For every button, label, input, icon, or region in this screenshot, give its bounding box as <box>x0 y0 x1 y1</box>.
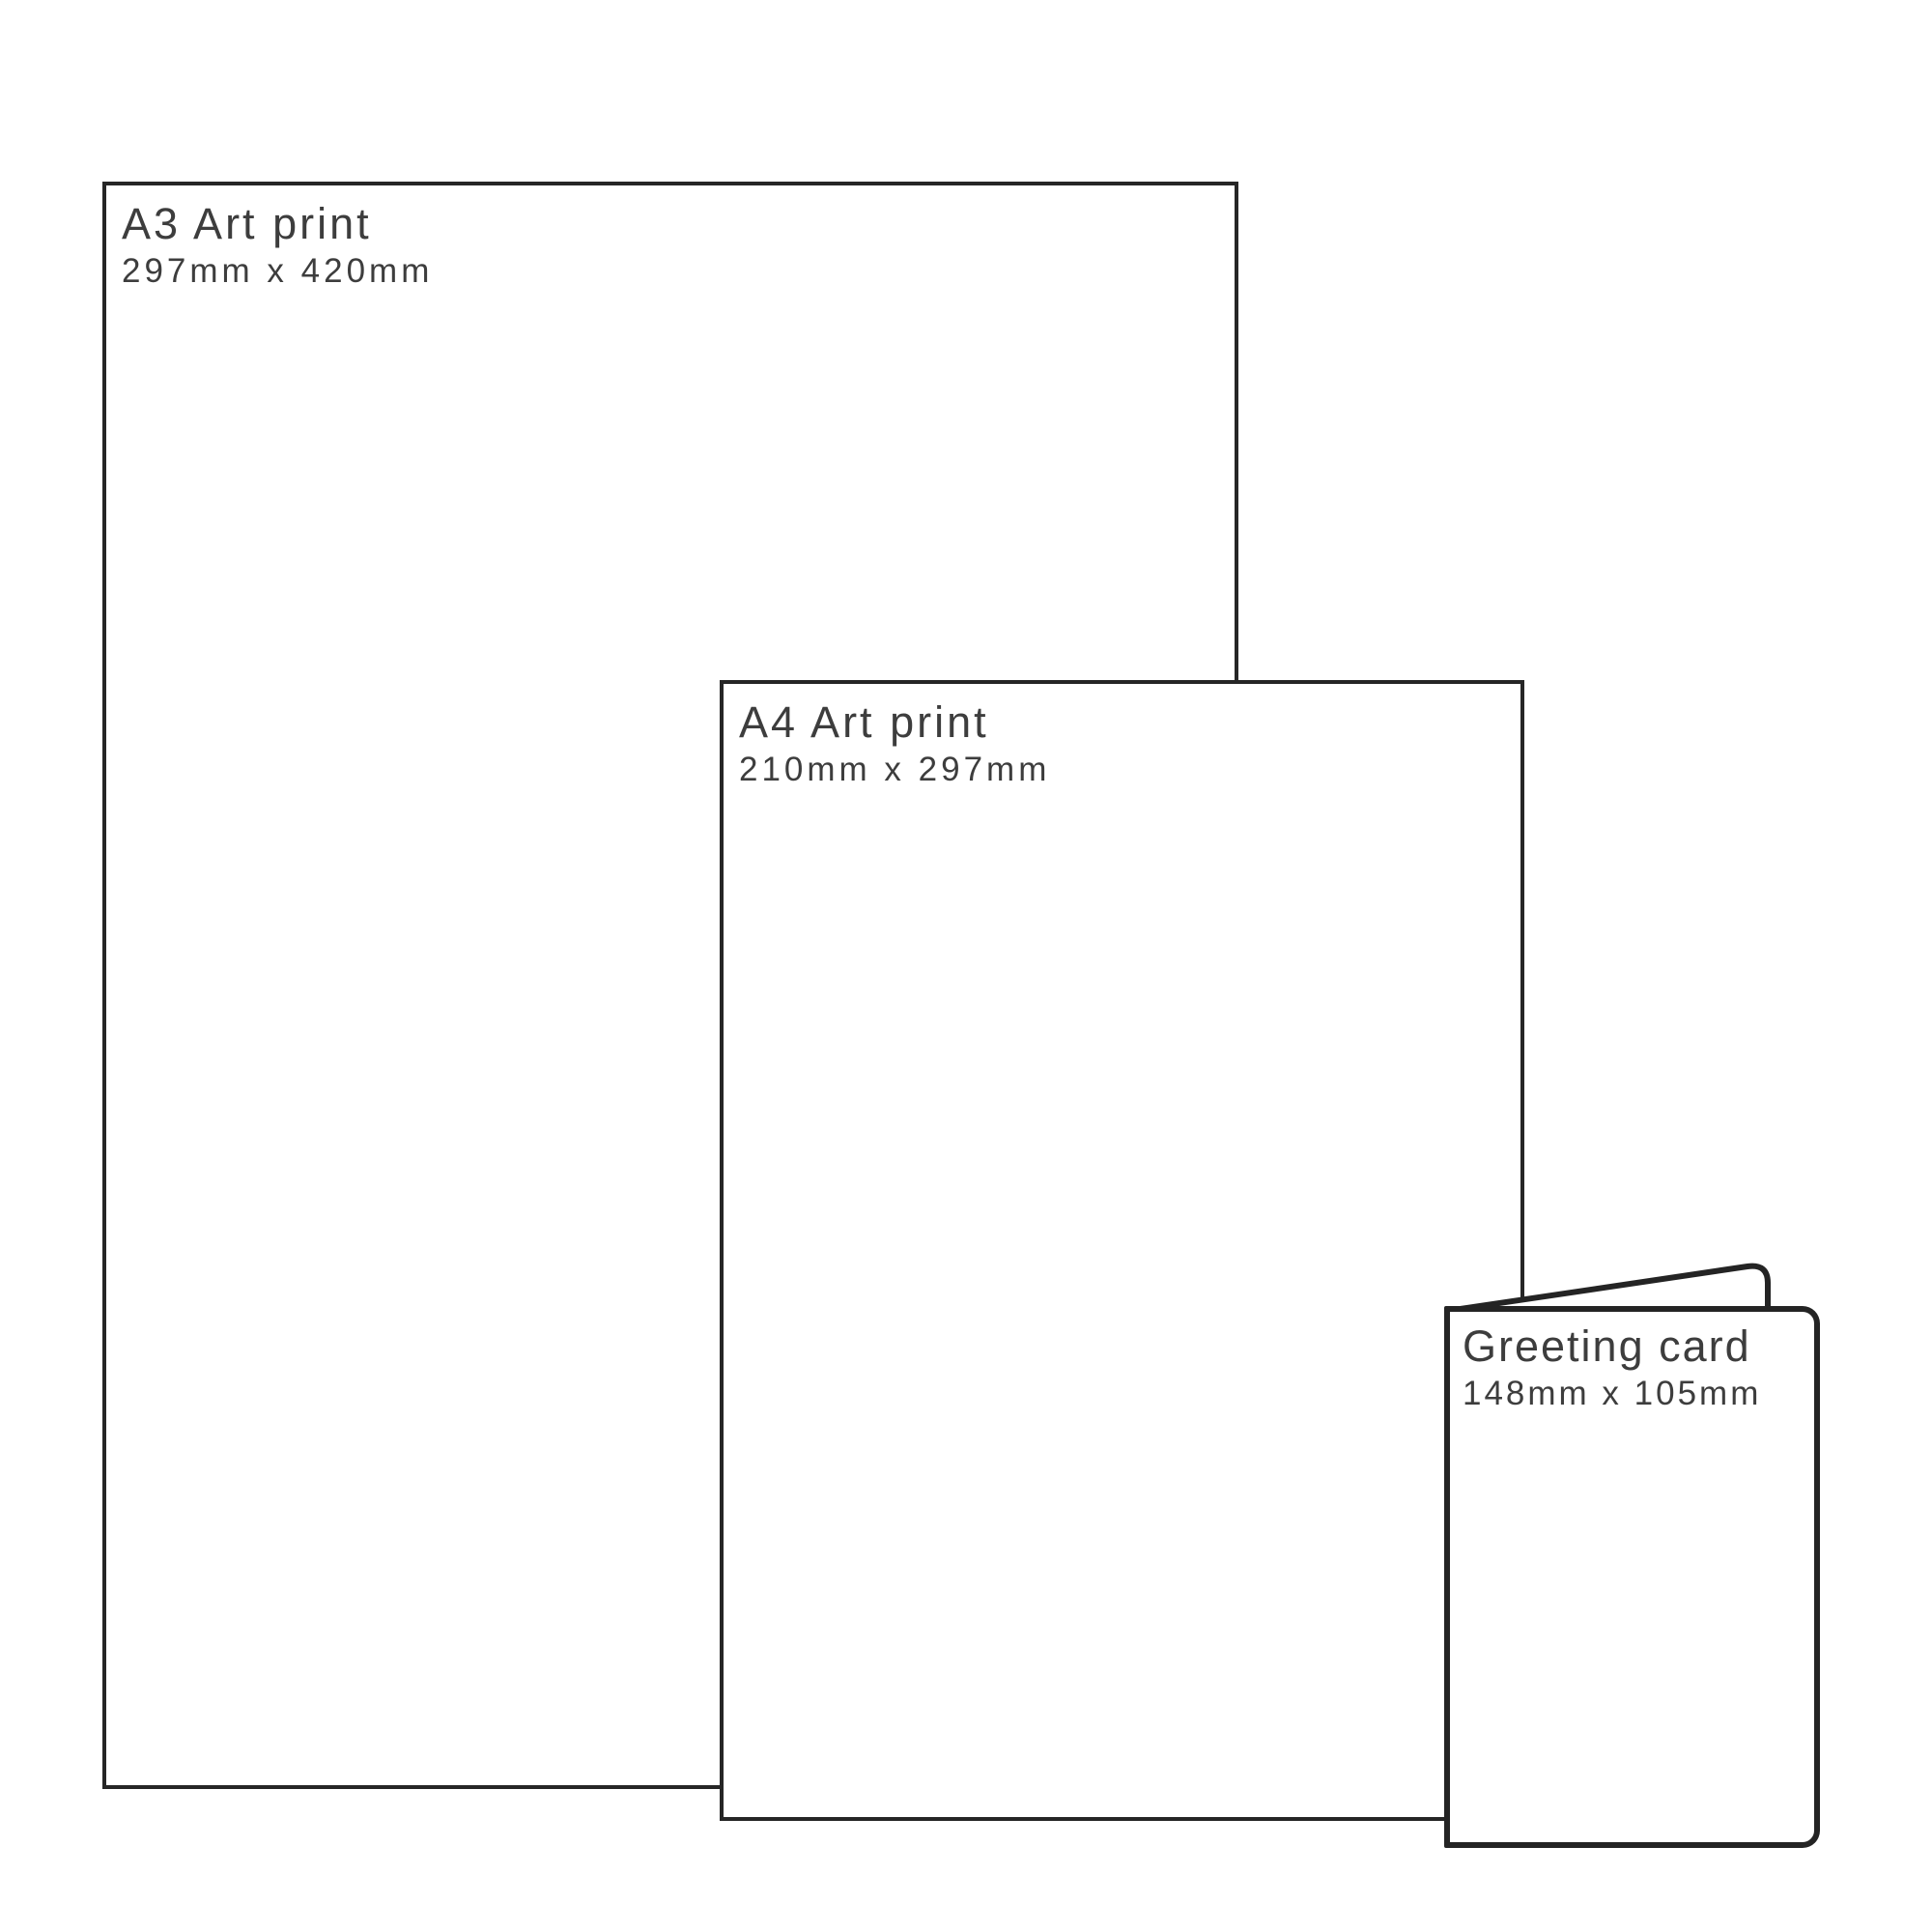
greeting-card-title: Greeting card <box>1463 1321 1808 1372</box>
a3-dimensions: 297mm x 420mm <box>122 249 1225 294</box>
a4-sheet-outline: A4 Art print 210mm x 297mm <box>720 680 1524 1821</box>
a4-label: A4 Art print 210mm x 297mm <box>724 684 1520 792</box>
a4-title: A4 Art print <box>739 697 1511 748</box>
greeting-card-front-panel: Greeting card 148mm x 105mm <box>1444 1306 1820 1848</box>
a4-dimensions: 210mm x 297mm <box>739 748 1511 792</box>
greeting-card-label: Greeting card 148mm x 105mm <box>1450 1312 1814 1416</box>
print-size-comparison-diagram: A3 Art print 297mm x 420mm A4 Art print … <box>0 0 1932 1932</box>
greeting-card-dimensions: 148mm x 105mm <box>1463 1372 1808 1416</box>
a3-label: A3 Art print 297mm x 420mm <box>106 185 1235 294</box>
a3-title: A3 Art print <box>122 199 1225 249</box>
